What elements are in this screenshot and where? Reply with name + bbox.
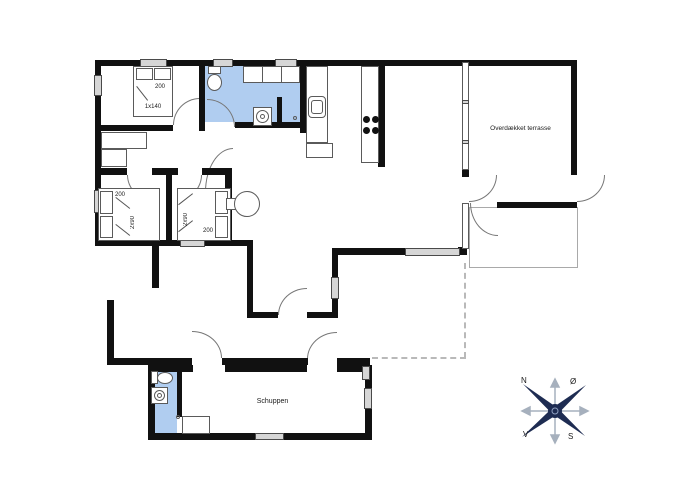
glass-wall-upper (462, 62, 469, 170)
door-terrace-left (469, 175, 497, 202)
wall-bath-stub (277, 97, 282, 126)
cooktop-burner-2 (372, 116, 379, 123)
window-shed-east-v (364, 388, 372, 409)
cooktop-burner-1 (363, 116, 370, 123)
wall-kitchen (378, 60, 385, 167)
bed1-length-label: 200 (150, 84, 170, 90)
wall-shed-bath-divider (177, 367, 182, 417)
shed-bath-door-knob (176, 415, 180, 419)
floorplan-canvas: 200 1x140 200 2x90 2x90 200 Overdækket (0, 0, 700, 500)
shed-label: Schuppen (240, 398, 305, 405)
wall-entry-screen (152, 246, 159, 288)
hall-closet-2 (101, 149, 127, 167)
shed-closet (182, 416, 210, 434)
wall-bedroom3-north (202, 168, 232, 175)
toilet-bowl (207, 74, 222, 91)
bed3-length-label: 200 (198, 228, 218, 234)
bed2-pillow-bottom (100, 216, 113, 238)
kitchen-sink-basin (311, 100, 323, 114)
bed1-pillow-right (154, 68, 171, 80)
compass-south-label: S (568, 433, 573, 441)
door-living-hall (278, 288, 307, 315)
wall-hall-south-a (107, 358, 192, 365)
wall-hall-south-c (337, 358, 370, 365)
glass-wall-lower (462, 203, 469, 249)
wall-shed-north-b (225, 365, 307, 372)
cooktop-burner-4 (372, 127, 379, 134)
glass-wall-tick-1 (462, 100, 469, 104)
window-living-south-wide (405, 248, 460, 256)
shed-toilet-bowl (157, 372, 173, 384)
hall-closet-1 (101, 132, 147, 149)
wall-bedroom2-north-a (95, 168, 127, 175)
door-bedroom1 (173, 98, 200, 125)
bed3-pillow-bottom (215, 216, 228, 238)
compass-west-label: V (523, 431, 528, 439)
compass-east-label: Ø (570, 378, 576, 386)
toilet-tank (208, 66, 221, 74)
wall-hall-west (107, 300, 114, 365)
wall-hall-south-b (222, 358, 308, 365)
window-bedroom3-south (180, 240, 205, 247)
terrace-label: Overdækket terrasse (473, 126, 568, 133)
wall-living-south-a (247, 312, 278, 318)
window-west-1 (94, 75, 102, 96)
bath-floor-drain (293, 116, 297, 120)
compass-rose (505, 372, 605, 450)
bed2-size-label: 2x90 (130, 203, 136, 229)
bath-counter-divider-1 (262, 66, 263, 83)
door-hall-exit-1 (192, 331, 222, 358)
wall-living-west (247, 246, 253, 318)
cooktop-burner-3 (363, 127, 370, 134)
window-living-east-v (331, 277, 339, 299)
round-table (234, 191, 260, 217)
washing-machine-center (260, 114, 265, 119)
bed1-size-label: 1x140 (139, 104, 167, 110)
window-shed-south (255, 433, 284, 440)
wall-bedroom2-north-b (152, 168, 178, 175)
wall-bedroom1-south (95, 125, 173, 131)
compass-north-label: N (521, 377, 527, 385)
kitchen-island (361, 66, 379, 163)
kitchen-counter-step (306, 143, 333, 158)
window-hall-east-v (362, 366, 370, 380)
wall-bedroom23-divider (166, 175, 172, 246)
bed1-pillow-left (136, 68, 153, 80)
shed-washer-center (157, 393, 162, 398)
bath-counter (243, 66, 300, 83)
door-terrace-right (577, 175, 605, 202)
door-hall-exit-2 (307, 332, 337, 359)
bath-counter-divider-2 (281, 66, 282, 83)
dashed-boundary-horizontal (372, 357, 466, 359)
wall-terrace-south (497, 202, 577, 208)
dashed-boundary-vertical (464, 263, 466, 358)
wall-bedroom1-bath (199, 60, 205, 131)
wall-terrace-east (571, 60, 577, 175)
bed2-length-label: 200 (110, 192, 130, 198)
glass-wall-tick-2 (462, 140, 469, 144)
bed3-size-label: 2x90 (183, 200, 189, 226)
wall-living-southeast (332, 248, 406, 255)
wall-glass-post (462, 170, 469, 177)
